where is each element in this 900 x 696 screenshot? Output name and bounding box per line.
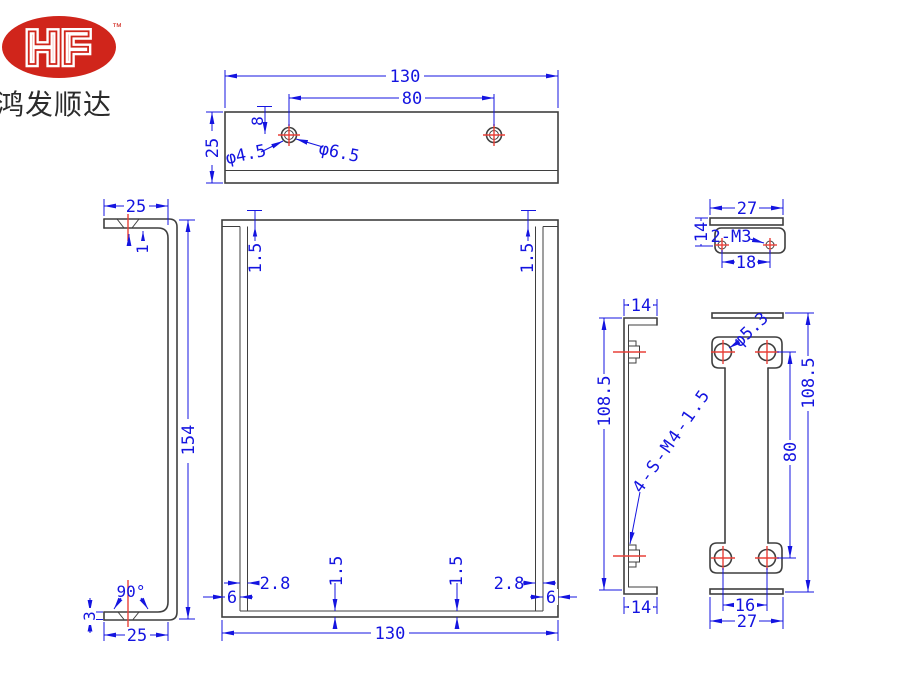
back-view-height-dim: 108.5 xyxy=(799,357,819,408)
logo-monogram-pinstripe: HF xyxy=(26,21,93,74)
front-view-bottom-thickness-left-dim: 1.5 xyxy=(327,556,347,587)
logo-company-name: 鸿发顺达 xyxy=(0,88,112,121)
logo: HF HF ™ 鸿发顺达 xyxy=(0,16,122,121)
back-view-width-dim: 27 xyxy=(737,612,757,632)
side-view-top-flange-dim: 14 xyxy=(631,296,651,316)
top-view-depth-dim: 25 xyxy=(203,138,223,158)
front-view-bottom-thickness-right-dim: 1.5 xyxy=(447,556,467,587)
small-view-width-dim: 27 xyxy=(737,199,757,219)
top-view-outline xyxy=(225,112,558,183)
front-view-width-dim: 130 xyxy=(375,624,406,644)
left-view-thickness-dim: 1 xyxy=(133,244,152,254)
back-view: φ5.3 108.5 80 16 27 xyxy=(710,309,819,632)
small-top-view: 27 2-M3 18 14 xyxy=(692,199,785,273)
top-view-hole-dia-label: φ6.5 xyxy=(317,139,361,167)
top-view-width-dim: 130 xyxy=(390,67,421,87)
drawing-canvas: HF HF ™ 鸿发顺达 130 80 25 xyxy=(0,0,900,696)
small-view-depth-dim: 14 xyxy=(692,222,712,242)
back-view-hole-dia-label: φ5.3 xyxy=(729,309,772,352)
front-view-outline xyxy=(222,220,558,617)
left-view-height-dim: 154 xyxy=(179,425,199,456)
back-view-bottom-strip xyxy=(710,589,783,594)
left-view-flange-width-dim: 25 xyxy=(126,197,146,217)
side-view-bottom-flange-dim: 14 xyxy=(631,598,651,618)
logo-trademark: ™ xyxy=(112,22,122,33)
side-view: 14 108.5 4-S-M4-1.5 14 xyxy=(595,296,715,618)
back-view-top-strip xyxy=(712,313,783,318)
top-countersink-left xyxy=(117,219,124,228)
left-view: 25 1 154 90° 3 25 xyxy=(80,197,199,646)
top-view-hole-offset-dim: 8 xyxy=(248,116,267,126)
front-view: 1.5 1.5 2.8 2.8 6 6 1.5 1.5 xyxy=(203,211,577,645)
top-view: 130 80 25 8 φ4.5 φ6.5 xyxy=(203,67,558,183)
front-view-flange-left-dim: 6 xyxy=(227,588,237,608)
left-view-bottom-thickness-dim: 3 xyxy=(80,611,99,621)
front-view-inset-right-dim: 2.8 xyxy=(494,574,525,594)
bottom-countersink-left xyxy=(118,612,124,620)
left-view-bottom-flange-width-dim: 25 xyxy=(127,626,147,646)
front-view-top-thickness-right-dim: 1.5 xyxy=(518,243,538,274)
left-view-inner-profile xyxy=(104,228,168,612)
front-view-top-thickness-left-dim: 1.5 xyxy=(246,243,266,274)
small-view-flange-strip xyxy=(710,218,783,225)
small-view-hole-spacing-dim: 18 xyxy=(736,253,756,273)
left-view-outer-profile xyxy=(104,219,177,620)
front-view-flange-right-dim: 6 xyxy=(546,588,556,608)
side-view-height-dim: 108.5 xyxy=(595,375,615,426)
top-view-countersink-dia-label: φ4.5 xyxy=(224,141,268,169)
side-view-stud-callout: 4-S-M4-1.5 xyxy=(629,385,716,497)
cad-drawing-page: HF HF ™ 鸿发顺达 130 80 25 xyxy=(0,0,900,696)
small-view-thread-callout: 2-M3 xyxy=(711,227,752,247)
top-view-hole-spacing-dim: 80 xyxy=(402,89,422,109)
top-countersink-right xyxy=(132,219,139,228)
back-view-hole-spacing-v-dim: 80 xyxy=(781,442,801,462)
bottom-countersink-right xyxy=(133,612,139,620)
front-view-inset-left-dim: 2.8 xyxy=(260,574,291,594)
